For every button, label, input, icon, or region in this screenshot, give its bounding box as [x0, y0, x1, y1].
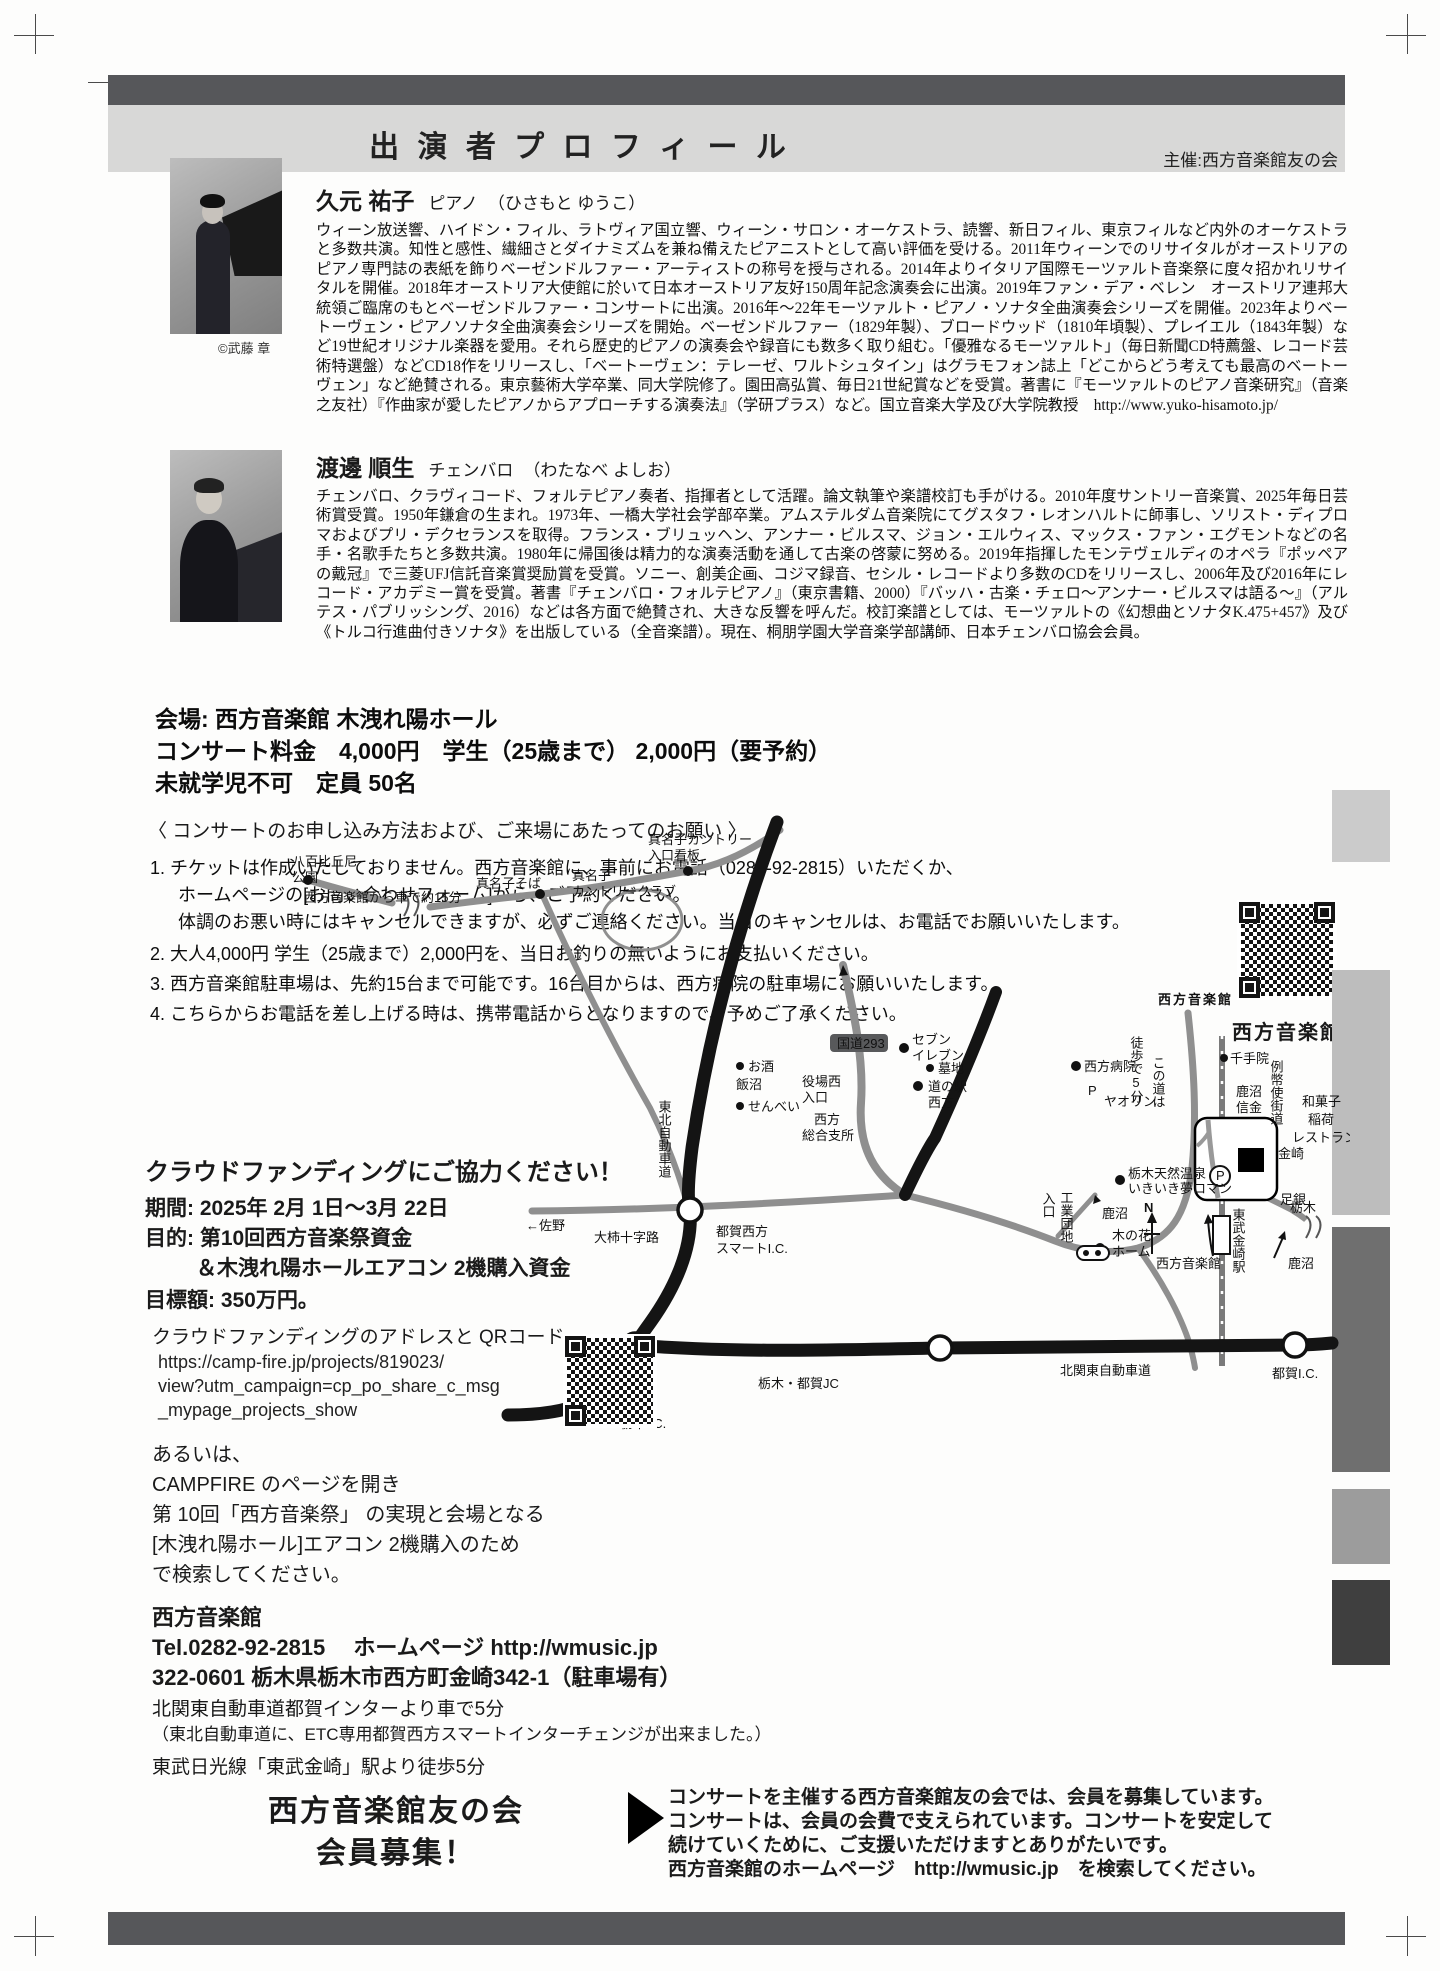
venue-hall: 会場: 西方音楽館 木洩れ陽ホール: [155, 700, 497, 734]
performer-bio: チェンバロ、クラヴィコード、フォルテピアノ奏者、指揮者として活躍。論文執筆や楽譜…: [316, 487, 1348, 647]
map-label: スマートI.C.: [716, 1241, 788, 1256]
map-label: 東武金崎駅: [1231, 1207, 1246, 1274]
header-top-bar: [108, 75, 1345, 105]
venue-price: コンサート料金 4,000円 学生（25歳まで） 2,000円（要予約）: [155, 732, 831, 766]
crop-mark: [35, 1916, 36, 1956]
qr-finder: [565, 1405, 586, 1426]
flyer-page: 出 演 者 プ ロ フ ィ ー ル 主催:西方音楽館友の会 ©武藤 章 久元 祐…: [0, 0, 1440, 1971]
map-label-north: N: [1144, 1200, 1153, 1215]
crop-mark: [1386, 35, 1426, 36]
map-label: レストラン: [1292, 1130, 1350, 1145]
map-label: 栃木天然温泉: [1128, 1166, 1206, 1181]
map-label: 西方: [814, 1112, 840, 1127]
road-sano: [532, 1195, 905, 1211]
membership-body: 続けていくために、ご支援いただけますとありがたいです。: [668, 1834, 1348, 1858]
map-label: ホーム: [1112, 1244, 1151, 1259]
map-label: 西方音楽館から車で約15分: [304, 890, 461, 905]
contact-address: 322-0601 栃木県栃木市西方町金崎342-1（駐車場有）: [152, 1660, 681, 1692]
figure-hair: [194, 478, 224, 493]
crop-mark: [1407, 14, 1408, 54]
map-label: 八百比丘尼: [292, 854, 357, 869]
map-label-hall: 西方音楽館: [1158, 992, 1233, 1007]
membership-body: 西方音楽館のホームページ http://wmusic.jp を検索してください。: [668, 1858, 1348, 1882]
performer-name: 渡邊 順生: [316, 455, 414, 481]
map-label: 入口看板: [648, 848, 700, 863]
crowdfunding-url: _mypage_projects_show: [158, 1400, 357, 1421]
performer-photo-watanabe: [170, 450, 282, 622]
map-label: 鹿沼: [1236, 1084, 1262, 1099]
map-label: 道の駅: [928, 1079, 967, 1094]
map-label-parking: P: [1088, 1083, 1097, 1098]
ic-tsuga-nishikata-smart: [678, 1198, 702, 1222]
contact-tel: Tel.0282-92-2815 ホームページ http://wmusic.jp: [152, 1630, 658, 1662]
performer-role: ピアノ: [428, 194, 477, 213]
qr-code-crowdfunding: [563, 1334, 657, 1428]
map-label: 大柿十字路: [594, 1230, 659, 1245]
access-car: 北関東自動車道都賀インターより車で5分: [152, 1694, 504, 1721]
map-label: 入口: [802, 1090, 828, 1105]
hall-building-square: [1238, 1148, 1264, 1172]
membership-title: 西方音楽館友の会: [240, 1786, 552, 1830]
crowdfunding-address-heading: クラウドファンディングのアドレスと QRコード: [152, 1322, 564, 1349]
crop-mark: [1407, 1916, 1408, 1956]
organizer-label: 主催:西方音楽館友の会: [1038, 146, 1338, 171]
crowdfunding-purpose-cont: ＆木洩れ陽ホールエアコン 2機購入資金: [196, 1252, 571, 1282]
contact-name: 西方音楽館: [152, 1600, 262, 1632]
map-label: 稲荷: [1308, 1112, 1334, 1127]
venue-capacity: 未就学児不可 定員 50名: [155, 764, 417, 798]
campfire-line: で検索してください。: [152, 1558, 351, 1587]
figure-hair: [200, 194, 225, 208]
map-label: 総合支所: [802, 1128, 854, 1143]
crop-mark: [1386, 1936, 1426, 1937]
map-label: 都賀I.C.: [1272, 1366, 1318, 1381]
membership-body: コンサートを主催する西方音楽館友の会では、会員を募集しています。: [668, 1786, 1348, 1810]
map-label: せんべい: [748, 1099, 800, 1114]
membership-title-cont: 会員募集！: [240, 1828, 552, 1872]
map-label-parking: P: [1216, 1168, 1225, 1183]
piano-silhouette: [222, 186, 282, 276]
performer-name: 久元 祐子: [316, 188, 414, 214]
map-label: 飯沼: [736, 1077, 762, 1092]
crop-mark: [88, 82, 108, 83]
performer-bio: ウィーン放送響、ハイドン・フィル、ラトヴィア国立響、ウィーン・サロン・オーケスト…: [316, 221, 1348, 419]
crowdfunding-alt: あるいは、: [152, 1438, 252, 1467]
performer-name-line: 渡邊 順生チェンバロ（わたなべ よしお）: [316, 449, 1216, 483]
map-label: 鹿沼: [1288, 1256, 1314, 1271]
pointer-triangle-icon: [628, 1792, 664, 1844]
map-label: 例幣使街道: [1269, 1060, 1284, 1125]
footer-bar: [108, 1912, 1345, 1945]
map-label: セブン: [912, 1032, 951, 1047]
map-label: 金崎: [1278, 1146, 1304, 1161]
road-kitakanto-expressway: [635, 1343, 1332, 1350]
map-label: 工業団地: [1059, 1191, 1074, 1243]
crowdfunding-title: クラウドファンディングにご協力ください！: [145, 1152, 623, 1187]
crowdfunding-purpose: 目的: 第10回西方音楽祭資金: [145, 1222, 412, 1252]
crowdfunding-goal: 目標額: 350万円。: [145, 1284, 319, 1314]
map-label: 西方音楽館: [1156, 1256, 1221, 1271]
access-train: 東武日光線「東武金崎」駅より徒歩5分: [152, 1752, 485, 1779]
access-car-note: （東北自動車道に、ETC専用都賀西方スマートインターチェンジが出来ました。）: [152, 1720, 771, 1745]
figure-body: [196, 220, 230, 334]
performer-photo-hisamoto: [170, 158, 282, 334]
signal-symbol: [1077, 1246, 1109, 1260]
crop-mark: [14, 35, 54, 36]
map-label: 栃木・都賀JC: [758, 1376, 839, 1391]
map-label: 信金: [1236, 1100, 1262, 1115]
map-label: 公園: [292, 870, 318, 885]
map-label: 徒歩で5分: [1129, 1036, 1144, 1104]
road-route293: [843, 965, 905, 1195]
campfire-line: CAMPFIRE のページを開き: [152, 1468, 401, 1497]
map-label: 東北自動車道: [657, 1099, 672, 1178]
crop-mark: [35, 14, 36, 54]
qr-finder: [565, 1336, 586, 1357]
map-label-route: 国道293: [837, 1036, 885, 1051]
performer-reading: （ひさもと ゆうこ）: [488, 194, 645, 213]
membership-body: コンサートは、会員の会費で支えられています。コンサートを安定して: [668, 1810, 1348, 1834]
crossing-circle: [928, 1336, 952, 1360]
map-label: 都賀西方: [716, 1224, 768, 1239]
ic-tsuga: [1283, 1333, 1307, 1357]
map-label: いきいき夢ロマン: [1128, 1181, 1232, 1196]
map-label: この道は: [1151, 1056, 1166, 1108]
station-marker: [1213, 1216, 1230, 1254]
crowdfunding-period: 期間: 2025年 2月 1日〜3月 22日: [145, 1192, 448, 1222]
page-title: 出 演 者 プ ロ フ ィ ー ル: [300, 122, 860, 166]
performer-role: チェンバロ: [428, 461, 513, 480]
country-club-outline: [602, 890, 682, 950]
map-label: 北関東自動車道: [1060, 1363, 1151, 1378]
photo-credit: ©武藤 章: [218, 338, 270, 357]
crowdfunding-url: https://camp-fire.jp/projects/819023/: [158, 1352, 444, 1373]
map-label: 鹿沼: [1102, 1206, 1128, 1221]
crop-mark: [14, 1936, 54, 1937]
campfire-line: [木洩れ陽ホール]エアコン 2機購入のため: [152, 1528, 520, 1557]
crowdfunding-url: view?utm_campaign=cp_po_share_c_msg: [158, 1376, 500, 1397]
map-label: 栃木: [1290, 1200, 1316, 1215]
map-label: 和菓子: [1302, 1094, 1341, 1109]
campfire-line: 第 10回「西方音楽祭」 の実現と会場となる: [152, 1498, 545, 1527]
performer-name-line: 久元 祐子ピアノ（ひさもと ゆうこ）: [316, 182, 1216, 216]
map-label: ←佐野: [526, 1218, 565, 1233]
map-label: 西方: [928, 1095, 954, 1110]
qr-finder: [634, 1336, 655, 1357]
map-label: 真名子: [572, 868, 611, 883]
map-label: 役場西: [802, 1074, 841, 1089]
map-label: 千手院: [1230, 1051, 1269, 1066]
map-label: カントリークラブ: [572, 884, 676, 899]
map-label: 真名子そば: [476, 876, 541, 891]
figure-body: [180, 520, 238, 622]
map-label: お酒: [748, 1059, 774, 1074]
map-label: 入口: [1041, 1192, 1056, 1218]
performer-reading: （わたなべ よしお）: [523, 461, 681, 480]
map-label: 木の花: [1112, 1228, 1151, 1243]
map-label: 墓地: [938, 1061, 964, 1076]
map-label: 真名子カントリー: [648, 832, 752, 847]
